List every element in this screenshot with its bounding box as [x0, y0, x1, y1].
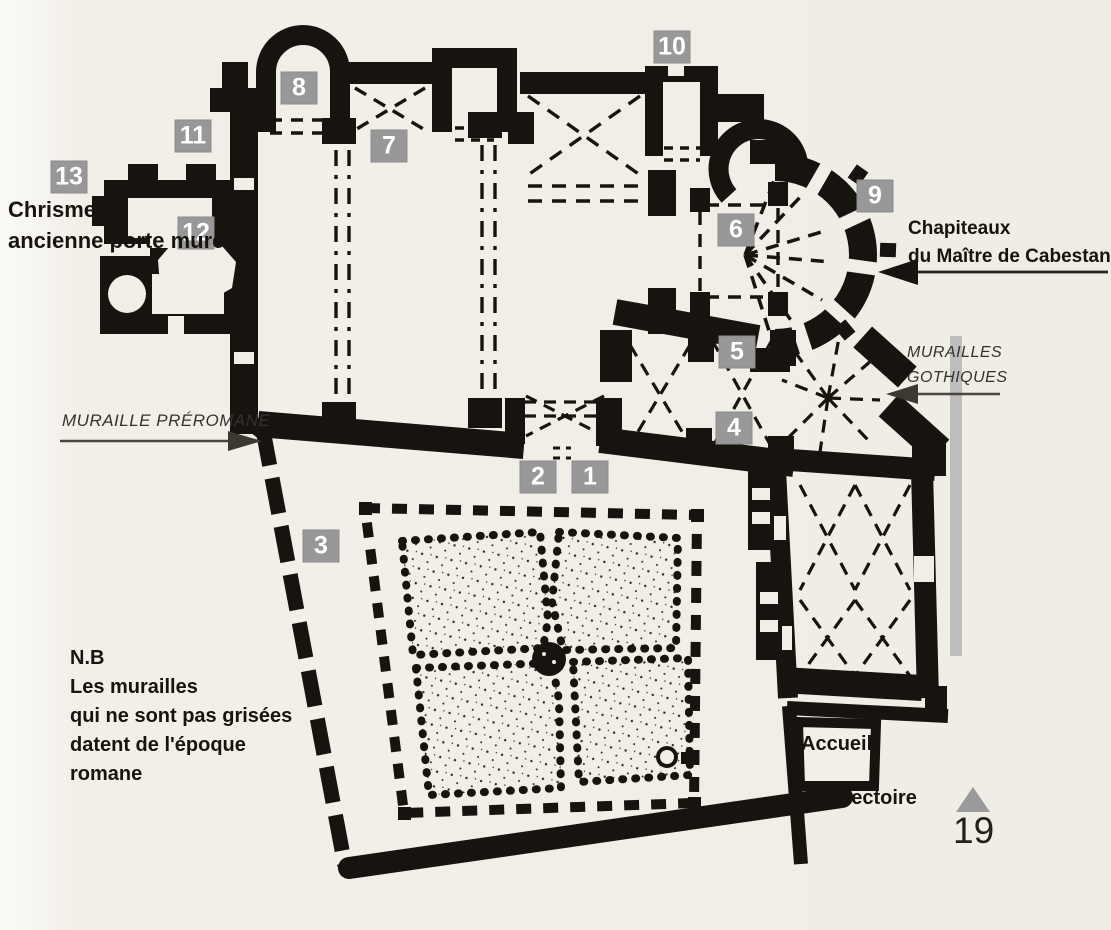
murailles-gothiques-label: MURAILLES GOTHIQUES	[907, 340, 1008, 390]
plan-marker-2: 2	[520, 461, 557, 494]
nota-bene: N.B Les murailles qui ne sont pas grisée…	[70, 644, 310, 789]
nb-line2: Les murailles	[70, 673, 310, 702]
gothiques-line2: GOTHIQUES	[907, 365, 1008, 390]
chrisme-label: Chrisme, ancienne porte murée	[8, 194, 237, 256]
nb-line1: N.B	[70, 644, 310, 673]
chapiteaux-label: Chapiteaux du Maître de Cabestany	[908, 215, 1111, 271]
refectoire-label: Réfectoire	[819, 787, 917, 810]
chapiteaux-line1: Chapiteaux	[908, 215, 1111, 243]
plan-marker-7: 7	[371, 130, 408, 163]
chrisme-line2: ancienne porte murée	[8, 225, 237, 256]
page-number: 19	[953, 810, 994, 852]
accueil-label: Accueil	[801, 733, 872, 756]
nb-line4: datent de l'époque	[70, 731, 310, 760]
chrisme-line1: Chrisme,	[8, 194, 237, 225]
plan-marker-6: 6	[718, 214, 755, 247]
plan-marker-3: 3	[303, 530, 340, 563]
nb-line3: qui ne sont pas grisées	[70, 702, 310, 731]
plan-markers: 12345678910111213	[0, 0, 1111, 930]
plan-marker-9: 9	[857, 180, 894, 213]
plan-marker-4: 4	[716, 412, 753, 445]
nb-line5: romane	[70, 760, 310, 789]
plan-marker-13: 13	[51, 161, 88, 194]
plan-marker-5: 5	[719, 336, 756, 369]
scanned-page: 12345678910111213 Chrisme, ancienne port…	[0, 0, 1111, 930]
page-marker-triangle-icon	[956, 787, 990, 812]
chapiteaux-line2: du Maître de Cabestany	[908, 243, 1111, 271]
gothiques-line1: MURAILLES	[907, 340, 1008, 365]
plan-marker-1: 1	[572, 461, 609, 494]
plan-marker-8: 8	[281, 72, 318, 105]
muraille-preromane-label: MURAILLE PRÉROMANE	[62, 411, 270, 431]
plan-marker-10: 10	[654, 31, 691, 64]
plan-marker-11: 11	[175, 120, 212, 153]
